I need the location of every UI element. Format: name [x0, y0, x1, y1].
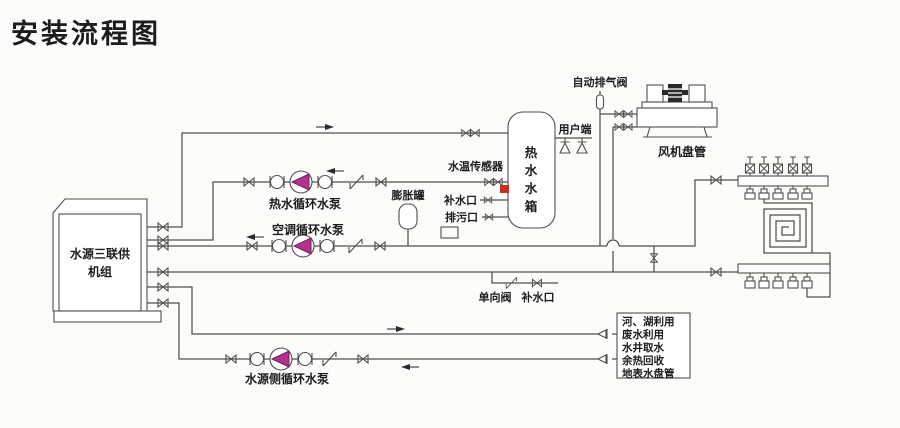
- connection-arrow-icon: [598, 329, 607, 339]
- pipe-crossover-hop: [607, 240, 619, 246]
- manifold-valve-icon: [746, 157, 755, 176]
- shower-icon: [577, 138, 587, 153]
- installation-flow-diagram: 安装流程图 水源三联供 机组 热水循环水泵 空调循环水泵: [0, 0, 900, 428]
- manifold-fitting-icon: [788, 186, 798, 199]
- source-options-box: 河、湖利用 废水利用 水井取水 余热回收 地表水盘管: [617, 313, 690, 380]
- flow-arrow-left-icon: [401, 364, 419, 370]
- manifold-valve-icon: [774, 157, 783, 176]
- tank-char: 水: [525, 181, 538, 196]
- hot-water-tank: 热 水 水 箱: [500, 112, 555, 228]
- fan-coil-top: [642, 102, 712, 108]
- temp-sensor-icon: [500, 185, 509, 193]
- floor-drain-icon: [441, 227, 458, 238]
- fan-coil-base: [643, 127, 712, 137]
- fan-coil-box-right: [689, 85, 705, 102]
- manifold-fitting-icon: [788, 273, 798, 288]
- makeup-port-line-label: 补水口: [521, 290, 555, 304]
- expansion-tank-label: 膨胀罐: [391, 188, 425, 202]
- manifold-bottom-bar: [738, 264, 830, 273]
- pipe-fancoil-riser-bottom: [613, 127, 637, 272]
- water-source-unit: 水源三联供 机组: [53, 199, 161, 322]
- flow-arrow-left-icon: [326, 168, 344, 174]
- tank-char: 水: [525, 163, 538, 178]
- pipe-ac-return: [147, 180, 738, 246]
- pipe-ac-supply: [147, 272, 738, 283]
- fan-coil-body: [637, 108, 717, 127]
- unit-label-line1: 水源三联供: [70, 246, 130, 261]
- manifold-top-bar: [738, 176, 828, 186]
- manifold-fitting-icon: [802, 273, 812, 288]
- fan-coil-box-left: [647, 85, 663, 102]
- auto-vent-icon: [597, 95, 604, 109]
- pump-air-conditioning: [272, 235, 334, 257]
- manifold-valve-icon: [760, 157, 769, 176]
- source-option: 废水利用: [622, 328, 664, 341]
- manifold-bottom: [738, 264, 830, 288]
- manifold-valve-icon: [789, 157, 798, 176]
- makeup-port-tank-label: 补水口: [443, 193, 477, 207]
- manifold-fitting-icon: [745, 273, 755, 288]
- manifold-fitting-icon: [802, 186, 812, 199]
- flow-arrow-right-icon: [387, 326, 405, 332]
- check-valve-label: 单向阀: [479, 290, 512, 304]
- pump-hot-water: [270, 171, 332, 193]
- manifold-fitting-icon: [759, 186, 769, 199]
- source-option: 水井取水: [621, 341, 664, 354]
- connection-arrow-icon: [598, 354, 607, 364]
- manifold-top: [738, 157, 828, 199]
- ac-pump-label: 空调循环水泵: [272, 222, 344, 237]
- page-title: 安装流程图: [11, 19, 161, 50]
- source-option: 余热回收: [621, 354, 664, 367]
- manifold-fitting-icon: [773, 186, 783, 199]
- manifold-fitting-icon: [773, 273, 783, 288]
- auto-vent-label: 自动排气阀: [573, 75, 628, 89]
- pipe-source-return: [147, 303, 617, 359]
- pipe-coil-connector: [807, 253, 830, 297]
- temp-sensor-label: 水温传感器: [448, 159, 504, 173]
- expansion-tank: 膨胀罐: [391, 188, 425, 229]
- manifold-valve-icon: [803, 157, 812, 176]
- shower-icon: [560, 138, 570, 153]
- unit-base: [54, 311, 161, 322]
- pump-water-source: [250, 348, 312, 370]
- tank-char: 热: [525, 145, 538, 160]
- flow-arrow-left-icon: [246, 234, 264, 240]
- tank-char: 箱: [525, 199, 538, 214]
- expansion-tank-body: [399, 204, 417, 229]
- fan-coil-unit: 风机盘管: [637, 84, 717, 159]
- source-pump-label: 水源侧循环水泵: [245, 371, 329, 386]
- user-end-label: 用户端: [559, 122, 592, 136]
- drain-port-label: 排污口: [445, 210, 478, 224]
- source-option: 河、湖利用: [622, 315, 675, 328]
- flow-arrow-right-icon: [316, 124, 334, 130]
- manifold-fitting-icon: [759, 273, 769, 288]
- source-option: 地表水盘管: [622, 367, 675, 380]
- unit-label-line2: 机组: [88, 264, 112, 279]
- fan-coil-label: 风机盘管: [658, 144, 706, 159]
- hot-pump-label: 热水循环水泵: [269, 196, 341, 211]
- diagram-canvas: 安装流程图 水源三联供 机组 热水循环水泵 空调循环水泵: [0, 0, 900, 428]
- manifold-fitting-icon: [745, 186, 755, 199]
- floor-coil-spiral: [764, 203, 812, 253]
